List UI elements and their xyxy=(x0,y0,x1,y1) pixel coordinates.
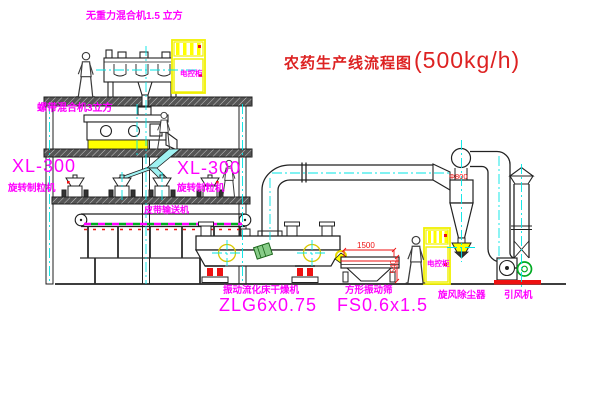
drawing-title: 农药生产线流程图 (500kg/h) xyxy=(284,47,520,74)
person-1 xyxy=(76,52,95,96)
label-granulator-left-model: XL-300 xyxy=(12,157,76,175)
fluid-bed-dryer xyxy=(196,222,352,283)
fan-suction-pipe xyxy=(470,152,515,263)
control-cabinet-2 xyxy=(424,228,450,284)
title-text: 农药生产线流程图 xyxy=(284,52,412,73)
dryer-spring-mounts xyxy=(202,266,318,283)
label-fan: 引风机 xyxy=(504,291,533,301)
dim-screen-length: 1500 xyxy=(357,242,375,250)
cabinet-2-text: 电控柜 xyxy=(427,260,450,268)
label-granulator-left-name: 旋转制粒机 xyxy=(8,184,56,194)
induced-draft-fan xyxy=(494,258,541,285)
label-granulator-right-name: 旋转制粒机 xyxy=(177,184,225,194)
control-cabinet-1 xyxy=(172,40,205,93)
label-ribbon-mixer: 螺带混合机3立方 xyxy=(37,104,113,114)
dim-screen-height: 540 xyxy=(390,260,398,273)
label-screen-model: FS0.6x1.5 xyxy=(337,296,428,314)
cabinet-1-text: 电控柜 xyxy=(180,70,203,78)
diagram: 农药生产线流程图 (500kg/h) 无重力混合机1.5 立方 螺带混合机3立方… xyxy=(0,0,600,403)
label-gravity-mixer: 无重力混合机1.5 立方 xyxy=(86,12,183,22)
label-belt-conveyor: 皮带输送机 xyxy=(144,206,189,215)
label-cyclone: 旋风除尘器 xyxy=(438,291,486,301)
dim-cyclone-diameter: Φ800 xyxy=(449,173,468,181)
title-capacity: (500kg/h) xyxy=(414,47,520,74)
label-granulator-right-model: XL-300 xyxy=(177,159,241,177)
person-4 xyxy=(406,236,425,283)
label-dryer-model: ZLG6x0.75 xyxy=(219,296,317,314)
